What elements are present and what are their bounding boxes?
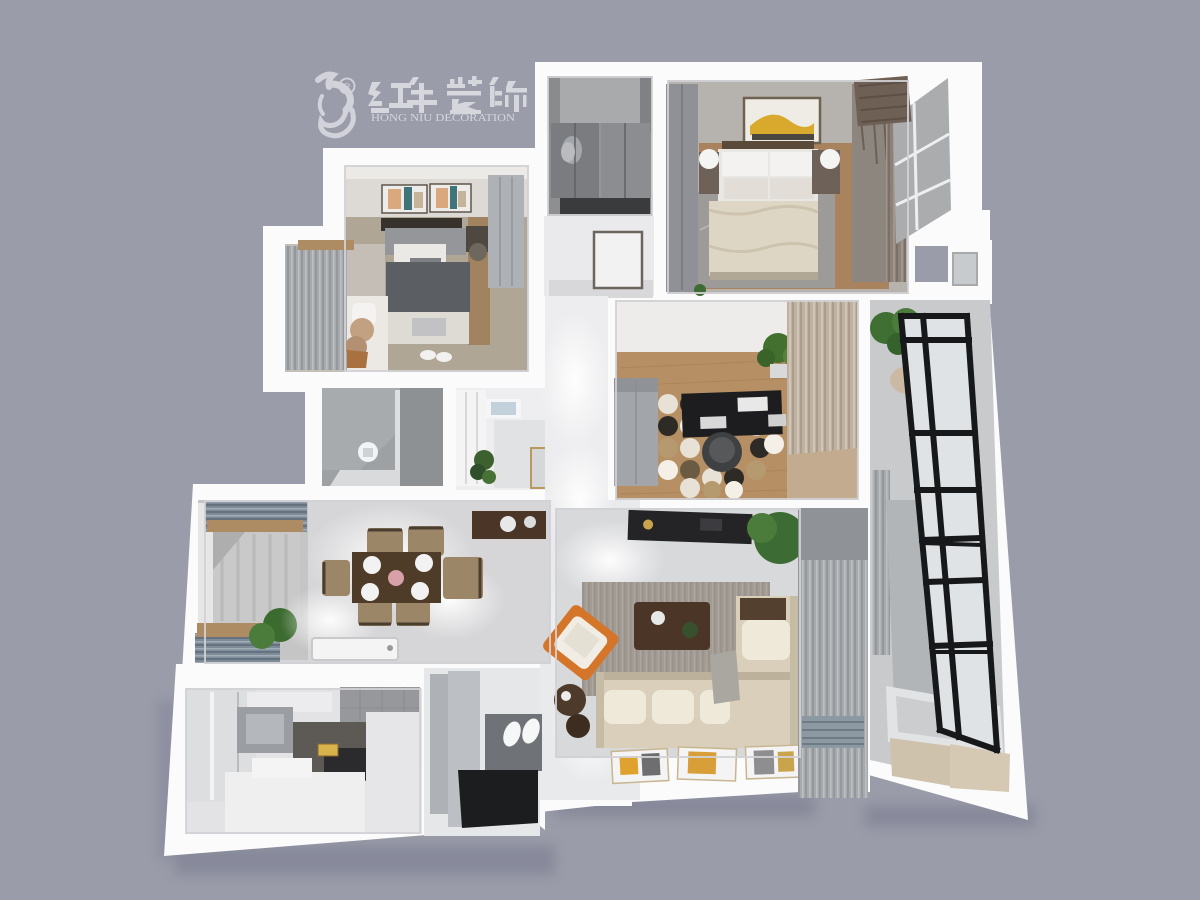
- svg-text:R: R: [344, 82, 351, 93]
- svg-text:HONG NIU DECORATION: HONG NIU DECORATION: [371, 112, 515, 124]
